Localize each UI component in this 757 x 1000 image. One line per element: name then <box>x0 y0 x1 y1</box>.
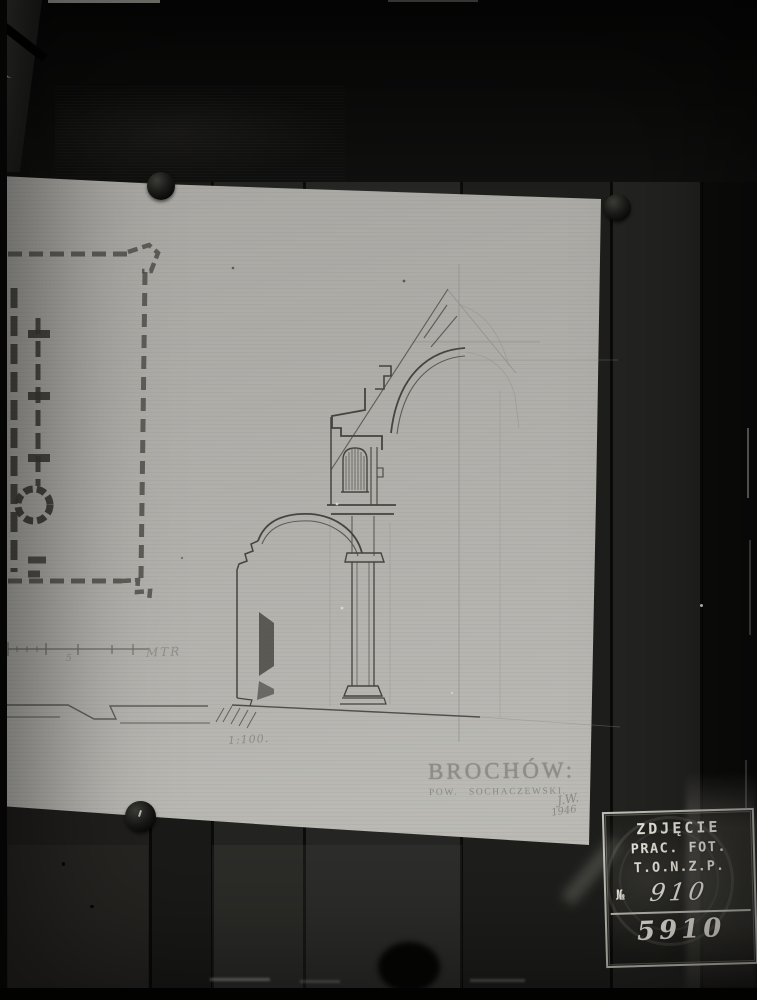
stamp-number-row: № 910 <box>606 878 755 910</box>
drawing-subtitle: POW. SOCHACZEWSKI. <box>429 786 619 798</box>
dust-speck <box>90 905 94 908</box>
wood-top-band <box>0 0 757 182</box>
stamp-line: ZDJĘCIE <box>604 817 752 839</box>
photo-edge <box>0 0 7 1000</box>
dust-speck <box>700 604 703 607</box>
archival-photo: BROCHÓW: POW. SOCHACZEWSKI. 1:100. MTR 5… <box>0 0 757 1000</box>
wood-rough-texture <box>55 85 345 180</box>
floor-glint <box>470 979 525 982</box>
photo-scratch <box>747 428 749 498</box>
photo-edge-glint <box>48 0 160 3</box>
stamp-line: PRAC. FOT. <box>605 838 753 858</box>
photo-edge-glint <box>388 0 478 2</box>
shadow-blob <box>378 942 440 992</box>
stamp-catalog-number: 5910 <box>607 912 756 949</box>
pushpin-icon <box>147 172 175 200</box>
scale-note: 1:100. <box>228 732 270 747</box>
photo-edge <box>0 988 757 1000</box>
photo-scratch <box>745 760 747 808</box>
wood-grain-patch <box>8 845 148 990</box>
photo-scratch <box>749 540 751 635</box>
pin-glint <box>138 810 142 817</box>
floor-glint <box>300 980 340 983</box>
stamp-line: T.O.N.Z.P. <box>605 857 753 877</box>
scale-bar-label: MTR <box>146 644 182 659</box>
archive-stamp: ZDJĘCIE PRAC. FOT. T.O.N.Z.P. № 910 5910 <box>602 808 757 968</box>
stamp-number-value: 910 <box>648 877 710 907</box>
scale-bar-number: 5 <box>66 654 72 664</box>
pushpin-icon <box>125 801 156 832</box>
pushpin-icon <box>604 194 631 221</box>
dust-speck <box>62 862 65 866</box>
stamp-number-label: № <box>616 888 625 904</box>
drawing-title: BROCHÓW: <box>428 757 608 785</box>
floor-glint <box>210 978 270 981</box>
